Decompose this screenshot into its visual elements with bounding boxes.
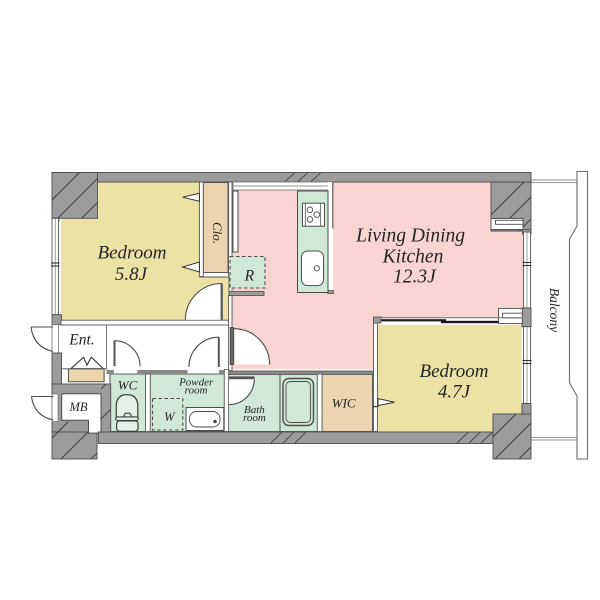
svg-text:Kitchen: Kitchen — [382, 247, 444, 268]
svg-text:Bedroom: Bedroom — [98, 243, 167, 264]
svg-text:Living Dining: Living Dining — [355, 225, 465, 246]
svg-text:Ent.: Ent. — [68, 332, 94, 349]
svg-text:W: W — [164, 410, 176, 424]
svg-text:Bedroom: Bedroom — [420, 361, 489, 382]
svg-text:R: R — [244, 268, 255, 285]
svg-text:5.8J: 5.8J — [115, 264, 149, 285]
svg-text:MB: MB — [68, 400, 87, 414]
svg-text:Clo.: Clo. — [210, 222, 225, 244]
svg-text:WIC: WIC — [332, 395, 356, 410]
svg-text:4.7J: 4.7J — [438, 382, 472, 403]
svg-text:room: room — [185, 385, 208, 397]
svg-text:12.3J: 12.3J — [393, 267, 437, 288]
svg-text:WC: WC — [118, 378, 138, 393]
svg-text:Balcony: Balcony — [547, 288, 562, 332]
svg-text:room: room — [243, 412, 266, 424]
